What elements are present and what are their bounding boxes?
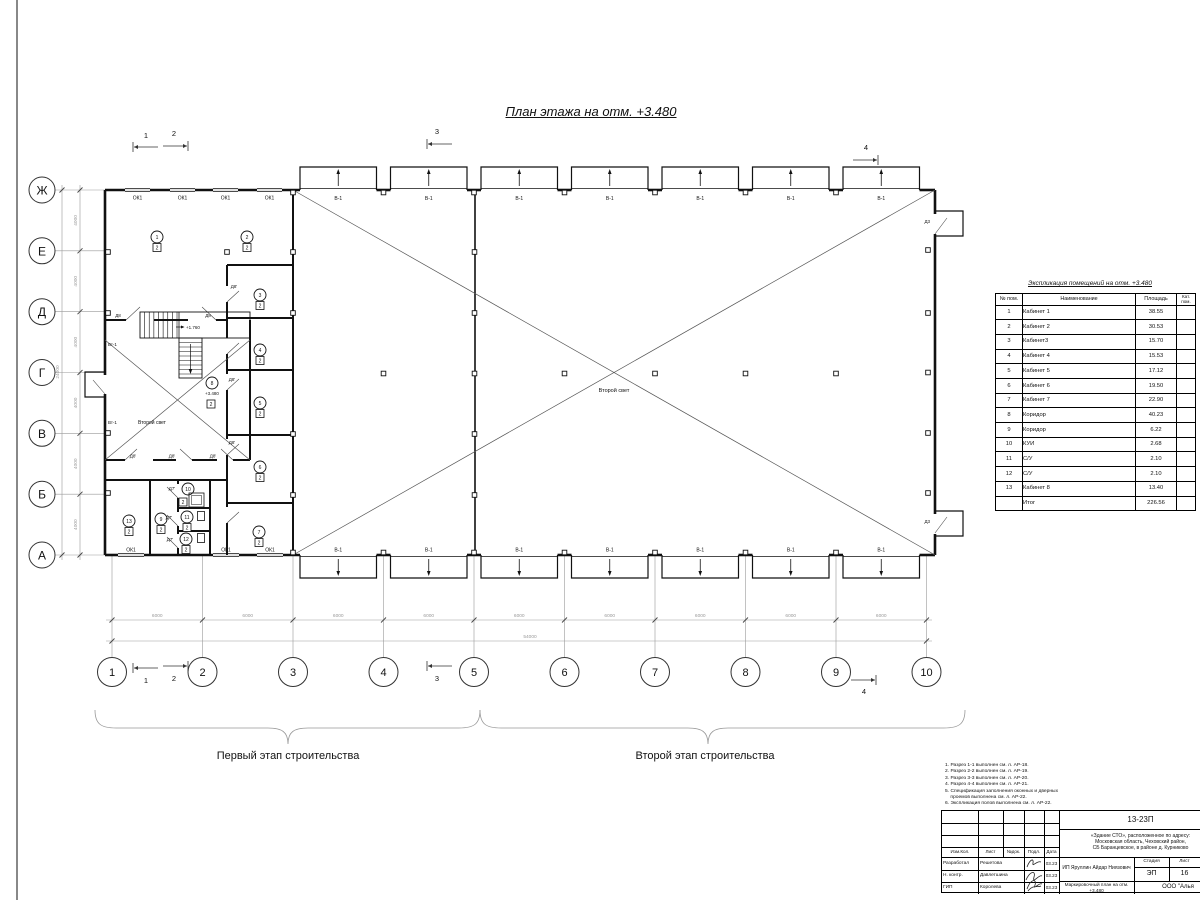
gate-label: В-1: [787, 548, 795, 554]
dim-label: 6000: [876, 613, 887, 619]
column-mark: [472, 311, 477, 316]
room-number: 8: [211, 381, 214, 387]
room-category: 2: [210, 402, 213, 408]
column-mark: [291, 432, 296, 437]
sheet-value: 16: [1169, 867, 1200, 881]
axis-label: Д: [38, 305, 46, 319]
table-row: 7Кабинет 722.90: [996, 393, 1196, 408]
exit-porch: [935, 211, 963, 236]
column-mark: [926, 491, 931, 496]
window-label: ОК1: [221, 548, 231, 554]
door-leaf: [935, 517, 947, 533]
window-label: ОК1: [133, 196, 143, 202]
table-row: 3Кабинет315.70: [996, 334, 1196, 349]
drawing-sheet: { "title": "План этажа на отм. +3.480", …: [0, 0, 1200, 900]
room-category: 2: [246, 246, 249, 252]
column-mark: [106, 311, 111, 316]
section-mark: [183, 144, 187, 148]
section-mark: [134, 666, 138, 670]
exit-porch: [935, 511, 963, 536]
column-mark: [106, 431, 111, 436]
axis-label: 6: [561, 667, 567, 679]
table-row: 2Кабинет 230.53: [996, 320, 1196, 335]
column-mark: [106, 491, 111, 496]
room-category: 2: [259, 476, 262, 482]
dim-label: 54000: [523, 634, 537, 640]
column-mark: [291, 311, 296, 316]
name-developer: Решетова: [980, 857, 1024, 870]
axis-label: Г: [39, 366, 46, 380]
door-leaf: [227, 512, 239, 523]
vent-unit-label: Вт-1: [108, 342, 117, 347]
window-label: ОК1: [126, 548, 136, 554]
gate-label: В-1: [425, 196, 433, 202]
column-mark: [743, 190, 748, 195]
col-header-area: Площадь: [1136, 294, 1177, 306]
axis-label: Е: [38, 244, 46, 258]
table-row: 5Кабинет 517.12: [996, 364, 1196, 379]
table-row: 12С/У2.10: [996, 467, 1196, 482]
section-mark: [871, 678, 875, 682]
section-mark: [183, 664, 187, 668]
door-leaf: [935, 218, 947, 234]
header-ndoc: №док.: [1003, 847, 1024, 857]
room-number: 5: [259, 401, 262, 407]
organization-name: ООО "Алья: [1134, 881, 1200, 894]
stage-value: ЭП: [1134, 867, 1169, 881]
dim-label: 4000: [73, 336, 79, 347]
table-row: 10КУИ2.68: [996, 437, 1196, 452]
title-block: 13-23П «Здание СТО», расположенное по ад…: [941, 810, 1200, 893]
door-label: Д8': [210, 454, 217, 459]
explication-table: № пом. Наименование Площадь Кат. пом. 1К…: [995, 293, 1196, 511]
gate-arrow: [698, 571, 702, 576]
axis-label: 9: [833, 667, 839, 679]
gate-arrow: [698, 169, 702, 174]
gate-label: В-1: [425, 548, 433, 554]
date-ncontrol: 03.23: [1044, 870, 1059, 882]
door-leaf: [227, 343, 239, 354]
room-category: 2: [259, 304, 262, 310]
stage-two-label: Второй этап строительства: [636, 750, 775, 762]
entrance-porch: [85, 372, 105, 397]
gate-arrow: [789, 571, 793, 576]
column-mark: [562, 371, 567, 376]
client-name: ИП Яруллин Айдар Ниязович: [1059, 857, 1134, 881]
header-date: Дата: [1044, 847, 1059, 857]
section-number: 2: [172, 674, 176, 683]
gate-label: В-1: [787, 196, 795, 202]
section-number: 4: [864, 143, 868, 152]
door-label: Д8': [231, 284, 238, 289]
col-header-cat: Кат. пом.: [1177, 294, 1196, 306]
gate-arrow: [517, 571, 521, 576]
section-number: 3: [435, 674, 439, 683]
door-label: Д8': [229, 440, 236, 445]
floor-level-label: +3.480: [205, 391, 219, 396]
room-number: 9: [160, 517, 163, 523]
gate-arrow: [336, 169, 340, 174]
column-mark: [653, 371, 658, 376]
gate-label: В-1: [696, 548, 704, 554]
column-mark: [653, 190, 658, 195]
section-number: 1: [144, 676, 148, 685]
gate-arrow: [608, 169, 612, 174]
room-number: 4: [259, 348, 262, 354]
column-mark: [926, 311, 931, 316]
column-mark: [834, 550, 839, 555]
role-gip: ГИП: [943, 882, 978, 894]
column-mark: [291, 550, 296, 555]
gate-arrow: [879, 169, 883, 174]
door-label: Д3: [924, 519, 930, 524]
gate-arrow: [879, 571, 883, 576]
table-row: 8Коридор40.23: [996, 408, 1196, 423]
column-mark: [225, 250, 230, 255]
door-label: Д7': [166, 515, 173, 520]
dim-label: 24000: [55, 365, 61, 379]
door-leaf: [227, 291, 239, 302]
stair-arrow: [189, 369, 193, 374]
notes: 1. Разрез 1-1 выполнен см. л. АР-18.2. Р…: [945, 763, 1058, 808]
column-mark: [472, 432, 477, 437]
column-mark: [562, 190, 567, 195]
room-category: 2: [128, 530, 131, 536]
column-mark: [291, 493, 296, 498]
signature-developer: [1024, 857, 1044, 870]
axis-label: 8: [742, 667, 748, 679]
doc-number: 13-23П: [1059, 811, 1200, 829]
column-mark: [472, 493, 477, 498]
gate-arrow: [336, 571, 340, 576]
sheet-header: Лист: [1169, 857, 1200, 867]
sheet-title: Маркировочный план на отм. +3.480: [1059, 881, 1134, 894]
dim-label: 4000: [73, 276, 79, 287]
door-leaf: [180, 449, 192, 460]
dim-label: 4000: [73, 458, 79, 469]
dim-label: 6000: [333, 613, 344, 619]
section-mark: [134, 145, 138, 149]
gate-label: В-1: [606, 196, 614, 202]
axis-label: 10: [920, 667, 932, 679]
name-gip: Королева: [980, 882, 1024, 894]
window-label: ОК1: [221, 196, 231, 202]
header-izm-kol: Изм.Кол.: [942, 847, 978, 857]
col-header-num: № пом.: [996, 294, 1023, 306]
table-row: Итог226.56: [996, 496, 1196, 511]
section-number: 2: [172, 129, 176, 138]
axis-label: 1: [109, 667, 115, 679]
axis-label: 5: [471, 667, 477, 679]
axis-label: 2: [199, 667, 205, 679]
room-category: 2: [185, 548, 188, 554]
room-number: 11: [184, 515, 189, 521]
dim-label: 6000: [785, 613, 796, 619]
door-label: Д8': [130, 454, 137, 459]
section-mark: [428, 142, 432, 146]
second-light-label: Второй свет: [138, 419, 167, 426]
table-row: 13Кабинет 813.40: [996, 481, 1196, 496]
vent-unit-label: Вт-1: [108, 420, 117, 425]
dim-label: 6000: [695, 613, 706, 619]
dim-label: 6000: [152, 613, 163, 619]
table-row: 1Кабинет 138.55: [996, 305, 1196, 320]
gate-arrow: [789, 169, 793, 174]
note-line: 6. Экспликация полов выполнена см. л. АР…: [945, 801, 1058, 807]
column-mark: [472, 190, 477, 195]
header-podp: Подл.: [1024, 847, 1044, 857]
table-row: 4Кабинет 415.53: [996, 349, 1196, 364]
axis-label: Б: [38, 488, 46, 502]
stage-one-label: Первый этап строительства: [217, 750, 360, 762]
toilet-fixture: [198, 534, 205, 543]
window-label: ОК1: [265, 548, 275, 554]
stage-header: Стадия: [1134, 857, 1169, 867]
room-number: 12: [183, 537, 189, 543]
gate-arrow: [608, 571, 612, 576]
column-mark: [834, 371, 839, 376]
room-number: 3: [259, 293, 262, 299]
axis-label: 3: [290, 667, 296, 679]
gate-label: В-1: [515, 196, 523, 202]
door-label: Д8: [115, 313, 121, 318]
column-mark: [106, 250, 111, 255]
column-mark: [926, 370, 931, 375]
toilet-fixture: [198, 512, 205, 521]
room-category: 2: [258, 541, 261, 547]
room-number: 13: [126, 519, 132, 525]
column-mark: [472, 250, 477, 255]
col-header-name: Наименование: [1023, 294, 1136, 306]
dim-label: 6000: [423, 613, 434, 619]
second-light-label: Второй свет: [599, 387, 630, 394]
dim-label: 4000: [73, 397, 79, 408]
object-address: «Здание СТО», расположенное по адресу: М…: [1059, 829, 1200, 857]
column-mark: [381, 550, 386, 555]
column-mark: [926, 431, 931, 436]
room-category: 2: [186, 526, 189, 532]
axis-label: 7: [652, 667, 658, 679]
room-category: 2: [160, 528, 163, 534]
date-developer: 03.23: [1044, 857, 1059, 870]
role-ncontrol: Н. контр.: [943, 870, 978, 882]
sink-fixture: [192, 496, 202, 505]
dim-label: 6000: [242, 613, 253, 619]
room-number: 6: [259, 465, 262, 471]
role-developer: Разработал: [943, 857, 978, 870]
gate-label: В-1: [606, 548, 614, 554]
room-category: 2: [259, 359, 262, 365]
page-title: План этажа на отм. +3.480: [505, 104, 676, 119]
door-label: Д8: [205, 313, 211, 318]
door-label: Д8': [169, 454, 176, 459]
room-category: 2: [259, 412, 262, 418]
gate-label: В-1: [877, 196, 885, 202]
window-label: ОК1: [265, 196, 275, 202]
column-mark: [472, 371, 477, 376]
table-row: 6Кабинет 619.50: [996, 379, 1196, 394]
column-mark: [653, 550, 658, 555]
column-mark: [381, 190, 386, 195]
gate-label: В-1: [877, 548, 885, 554]
axis-label: 4: [380, 667, 386, 679]
section-number: 3: [435, 127, 439, 136]
room-category: 2: [156, 246, 159, 252]
table-row: 9Коридор6.22: [996, 423, 1196, 438]
table-row: 11С/У2.10: [996, 452, 1196, 467]
axis-label: А: [38, 549, 46, 563]
header-list: Лист: [978, 847, 1003, 857]
gate-label: В-1: [696, 196, 704, 202]
section-mark: [428, 664, 432, 668]
gate-label: В-1: [334, 196, 342, 202]
room-number: 1: [156, 235, 159, 241]
column-mark: [743, 550, 748, 555]
room-number: 2: [246, 235, 249, 241]
dim-label: 6000: [514, 613, 525, 619]
column-mark: [834, 190, 839, 195]
door-label: Д8': [229, 377, 236, 382]
door-label: Д7': [167, 537, 174, 542]
room-category: 2: [182, 500, 185, 506]
section-mark: [873, 158, 877, 162]
door-leaf: [93, 380, 105, 394]
gate-label: В-1: [515, 548, 523, 554]
date-gip: 03.23: [1044, 882, 1059, 894]
gate-arrow: [427, 169, 431, 174]
stair-level-label: +1.760: [186, 325, 200, 330]
level-mark-arrow: [181, 326, 185, 329]
column-mark: [926, 248, 931, 253]
room-number: 10: [185, 487, 191, 493]
stage-two-brace: [480, 710, 965, 744]
column-mark: [291, 250, 296, 255]
gate-label: В-1: [334, 548, 342, 554]
room-number: 7: [258, 530, 261, 536]
dim-label: 6000: [604, 613, 615, 619]
column-mark: [381, 371, 386, 376]
name-ncontrol: Давлетшина: [980, 870, 1024, 882]
door-label: Д3: [924, 219, 930, 224]
door-label: Д7': [169, 486, 176, 491]
column-mark: [472, 550, 477, 555]
explication-title: Экспликация помещений на отм. +3.480: [1028, 280, 1152, 287]
section-number: 4: [862, 687, 866, 696]
dim-label: 4000: [73, 519, 79, 530]
door-leaf: [126, 307, 140, 320]
gate-arrow: [427, 571, 431, 576]
stage-one-brace: [95, 710, 480, 744]
column-mark: [562, 550, 567, 555]
axis-label: Ж: [36, 184, 47, 198]
signature-ncontrol-gip: [1024, 870, 1044, 894]
gate-arrow: [517, 169, 521, 174]
window-label: ОК1: [178, 196, 188, 202]
axis-label: В: [38, 427, 46, 441]
section-number: 1: [144, 131, 148, 140]
column-mark: [291, 190, 296, 195]
column-mark: [743, 371, 748, 376]
dim-label: 4000: [73, 215, 79, 226]
